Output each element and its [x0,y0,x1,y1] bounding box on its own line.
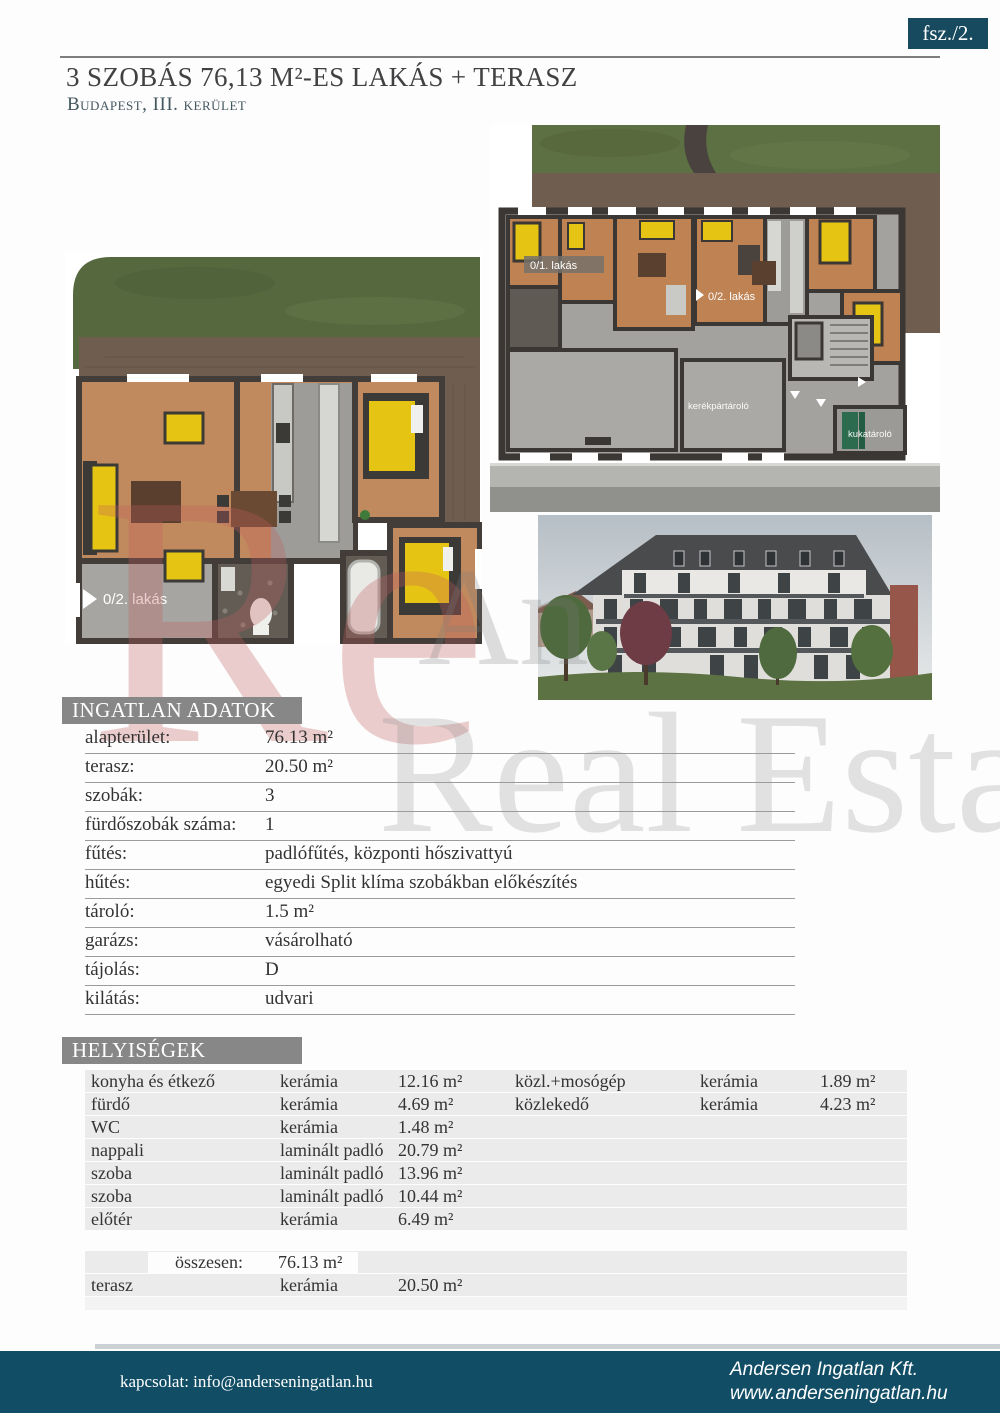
property-datasheet-page: fsz./2. 3 SZOBÁS 76,13 M²-ES LAKÁS + TER… [0,0,1000,1413]
armchair [165,413,203,443]
property-row: tájolás:D [85,956,795,986]
floor-unit-badge: fsz./2. [908,18,988,49]
apt2-label: 0/2. lakás [708,291,756,303]
trash-storage-label: kukatároló [848,429,892,440]
company-name: Andersen Ingatlan Kft. [730,1358,948,1382]
floorplan-detail-image: 0/2. lakás [65,253,482,645]
property-row: terasz:20.50 m² [85,753,795,783]
bed [405,543,449,603]
bathtub [349,561,379,633]
toilet [250,598,272,628]
table-end-strip [85,1297,907,1310]
floorplan-overview-image: 0/1. lakás 0/2. lakás kerékpártároló kuk… [490,125,940,512]
bike-storage-label: kerékpártároló [688,401,749,412]
plant [360,510,370,520]
kitchen-island [319,384,339,542]
room-row: konyha és étkezőkerámia12.16 m² közl.+mo… [85,1070,907,1092]
contact-email[interactable]: kapcsolat: info@anderseningatlan.hu [120,1372,373,1392]
terrace-row: teraszkerámia20.50 m² [85,1274,907,1296]
footer-band: kapcsolat: info@anderseningatlan.hu Ande… [0,1351,1000,1413]
property-row: hűtés:egyedi Split klíma szobákban előké… [85,869,795,899]
coffee-table [131,481,181,523]
garage-area [508,350,676,450]
property-row: fürdőszobák száma:1 [85,811,795,841]
elevator [796,323,822,359]
sidewalk [490,466,940,487]
grass-area [73,257,480,337]
section-title-property-data: INGATLAN ADATOK [62,697,302,724]
total-row: összesen: 76.13 m² [85,1251,907,1273]
property-row: fűtés:padlófűtés, központi hőszivattyú [85,840,795,870]
property-row: garázs:vásárolható [85,927,795,957]
dining-table [231,491,277,527]
rooms-table: konyha és étkezőkerámia12.16 m² közl.+mo… [85,1070,907,1310]
section-title-rooms: HELYISÉGEK [62,1037,302,1064]
sofa [91,465,117,551]
footer-divider [95,1344,1000,1349]
room-row: nappalilaminált padló20.79 m² [85,1139,907,1161]
apt1-label: 0/1. lakás [530,260,578,272]
table-spacer [85,1231,907,1251]
apt-label: 0/2. lakás [103,591,167,608]
sofa [640,221,674,239]
bed [369,401,415,471]
header-rule [60,56,940,58]
property-row: szobák:3 [85,782,795,812]
building-render-image [538,515,932,700]
adjacent-building [890,585,918,679]
property-row: alapterület:76.13 m² [85,724,795,754]
room-row: WCkerámia1.48 m² [85,1116,907,1138]
ground-strip [532,173,940,211]
property-row: kilátás:udvari [85,985,795,1015]
page-title: 3 SZOBÁS 76,13 M²-ES LAKÁS + TERASZ [66,62,578,93]
property-row: tároló:1.5 m² [85,898,795,928]
room-row: fürdőkerámia4.69 m² közlekedőkerámia4.23… [85,1093,907,1115]
page-subtitle: Budapest, III. kerület [67,94,246,116]
room-row: szobalaminált padló10.44 m² [85,1185,907,1207]
room-row: szobalaminált padló13.96 m² [85,1162,907,1184]
company-block: Andersen Ingatlan Kft. www.anderseningat… [730,1358,948,1406]
armchair [165,551,203,581]
room-row: előtérkerámia6.49 m² [85,1208,907,1230]
road [490,487,940,512]
bed [514,223,540,261]
company-website[interactable]: www.anderseningatlan.hu [730,1382,948,1406]
